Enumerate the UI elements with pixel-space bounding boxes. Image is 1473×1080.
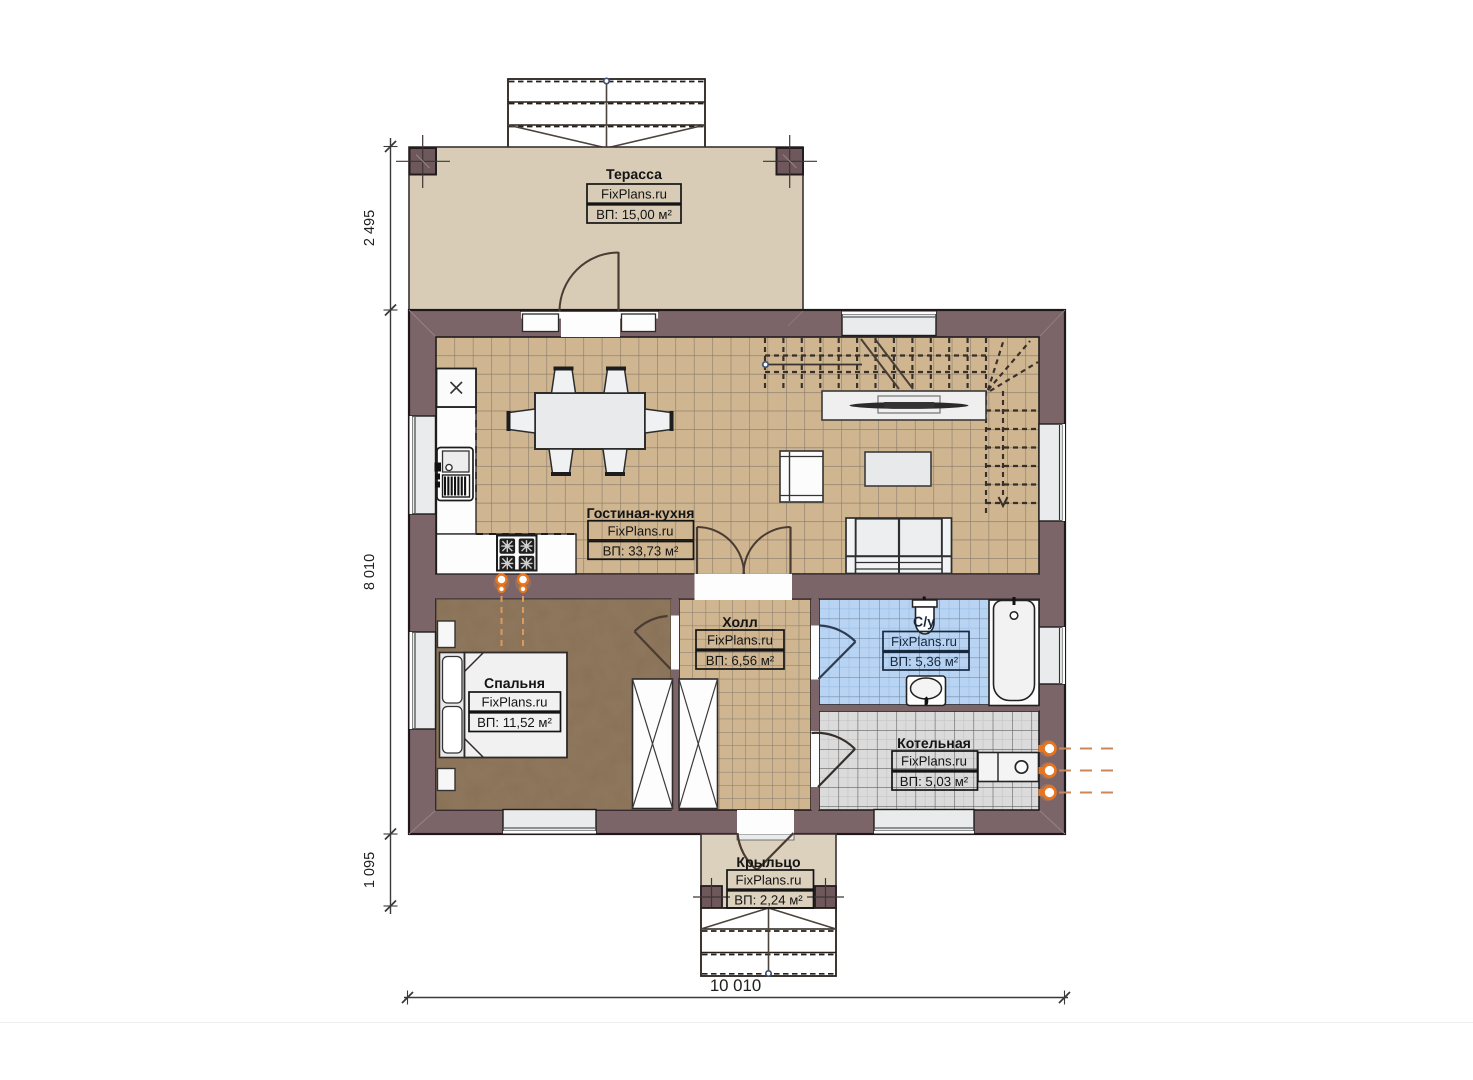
svg-text:Спальня: Спальня: [484, 675, 545, 691]
svg-text:10 010: 10 010: [710, 976, 761, 995]
svg-text:ВП: 15,00 м²: ВП: 15,00 м²: [596, 207, 672, 222]
svg-text:Холл: Холл: [722, 614, 757, 630]
svg-text:ВП: 11,52 м²: ВП: 11,52 м²: [477, 715, 552, 730]
svg-text:ВП: 2,24 м²: ВП: 2,24 м²: [734, 892, 803, 907]
svg-text:1 095: 1 095: [362, 852, 378, 888]
svg-text:FixPlans.ru: FixPlans.ru: [901, 754, 967, 769]
svg-text:Котельная: Котельная: [897, 735, 971, 751]
svg-text:2 495: 2 495: [362, 210, 378, 246]
svg-text:8 010: 8 010: [362, 554, 378, 590]
svg-text:Терасса: Терасса: [606, 166, 662, 182]
svg-text:FixPlans.ru: FixPlans.ru: [891, 634, 957, 649]
svg-text:FixPlans.ru: FixPlans.ru: [608, 523, 674, 538]
svg-text:FixPlans.ru: FixPlans.ru: [601, 187, 667, 202]
svg-text:FixPlans.ru: FixPlans.ru: [736, 873, 802, 888]
svg-text:ВП: 6,56 м²: ВП: 6,56 м²: [706, 653, 775, 668]
svg-text:FixPlans.ru: FixPlans.ru: [707, 633, 773, 648]
svg-text:ВП: 5,03 м²: ВП: 5,03 м²: [900, 774, 969, 789]
svg-text:FixPlans.ru: FixPlans.ru: [482, 695, 548, 710]
svg-text:ВП: 5,36 м²: ВП: 5,36 м²: [890, 654, 959, 669]
svg-text:ВП: 33,73 м²: ВП: 33,73 м²: [603, 543, 679, 558]
svg-text:С/у: С/у: [913, 614, 935, 630]
svg-text:Гостиная-кухня: Гостиная-кухня: [586, 505, 694, 521]
svg-text:Крыльцо: Крыльцо: [736, 854, 801, 870]
